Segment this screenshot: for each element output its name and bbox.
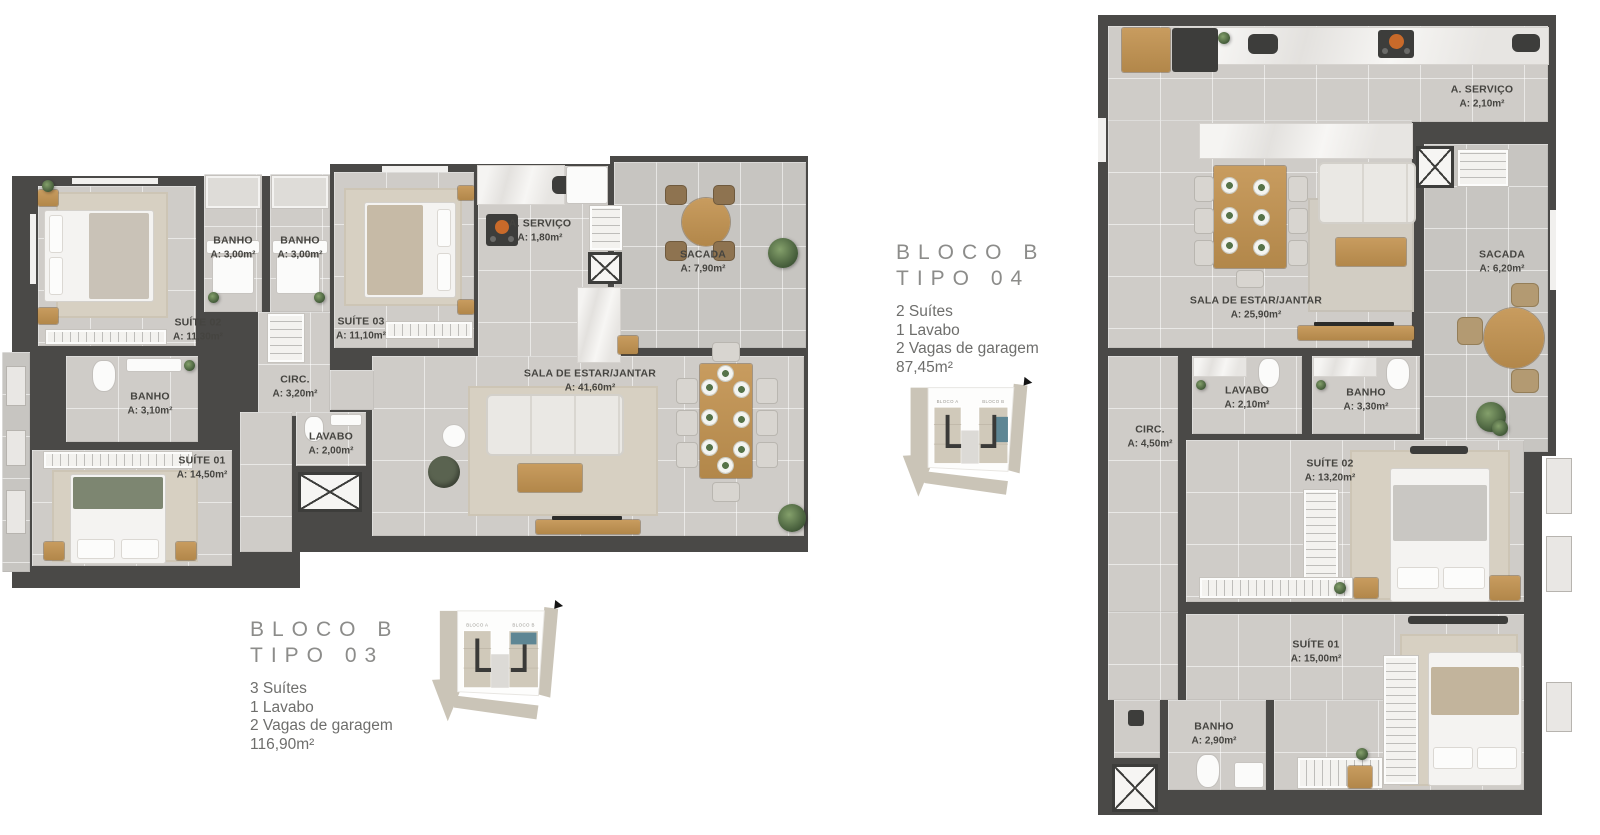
block-name: BLOCO B (896, 240, 1045, 266)
unit-info-tipo03: BLOCO B TIPO 03 3 Suítes 1 Lavabo 2 Vaga… (250, 617, 399, 754)
vanity (1194, 358, 1246, 376)
chair (1512, 370, 1538, 392)
chair (666, 186, 686, 204)
room-area: A: 3,00m² (277, 248, 322, 261)
plaza (491, 654, 509, 688)
nightstand (1354, 578, 1378, 598)
pillow (1477, 747, 1517, 769)
plate (734, 382, 749, 397)
plate (702, 380, 717, 395)
tipo-name: TIPO 03 (250, 643, 399, 669)
plate (734, 412, 749, 427)
room-name: BANHO (1191, 721, 1236, 735)
window (30, 214, 36, 284)
nightstand (1490, 576, 1520, 600)
pantry (1458, 150, 1508, 186)
bed (1428, 652, 1522, 786)
plant (1196, 380, 1206, 390)
wardrobe (1200, 578, 1352, 598)
total-area: 116,90m² (250, 736, 399, 755)
dresser (1408, 616, 1508, 624)
balcony-table (1484, 308, 1544, 368)
shower (272, 176, 328, 208)
room-label-lavabo: LAVABO A: 2,00m² (308, 431, 353, 458)
wardrobe (44, 452, 192, 468)
pan (1389, 34, 1404, 49)
chair (676, 410, 698, 436)
kitchen-cabinet (1122, 28, 1170, 72)
chair (1512, 284, 1538, 306)
chair (1458, 318, 1482, 344)
room-area: A: 2,00m² (308, 444, 353, 457)
room-area: A: 11,30m² (173, 330, 223, 343)
keyplan-label-bloco-a: BLOCO A (466, 623, 488, 628)
pan (495, 220, 509, 234)
keyplan-label-bloco-b: BLOCO B (982, 399, 1004, 404)
room-area: A: 7,90m² (680, 262, 726, 275)
blanket (1393, 485, 1487, 541)
chair (1194, 176, 1214, 202)
kitchen-sink (1248, 34, 1278, 54)
road (911, 388, 929, 462)
wardrobe (46, 330, 166, 344)
room-label-suite01: SUÍTE 01 A: 14,50m² (177, 455, 228, 482)
chair (1194, 240, 1214, 266)
room-area: A: 25,90m² (1190, 308, 1322, 321)
room-name: SUÍTE 01 (1291, 639, 1342, 653)
toilet (1196, 754, 1220, 788)
blanket (73, 477, 163, 509)
bed (44, 210, 154, 302)
ac-unit (1546, 458, 1572, 514)
room-name: SACADA (1479, 249, 1525, 263)
room-floor-hall (240, 412, 292, 552)
plant (1316, 380, 1326, 390)
room-area: A: 2,90m² (1191, 734, 1236, 747)
room-label-banho-c: BANHO A: 3,10m² (127, 391, 172, 418)
chair (1288, 240, 1308, 266)
kitchen-island (1200, 124, 1412, 158)
room-name: SUÍTE 02 (173, 317, 223, 331)
balcony-table (682, 198, 730, 246)
plant (1356, 748, 1368, 760)
plate (734, 442, 749, 457)
room-label-sacada: SACADA A: 6,20m² (1479, 249, 1525, 276)
north-arrow-icon (554, 600, 563, 609)
plate (702, 410, 717, 425)
road (440, 611, 458, 686)
room-label-servico: A. SERVIÇO A: 2,10m² (1451, 84, 1514, 111)
pillow (77, 539, 115, 559)
room-area: A: 15,00m² (1291, 652, 1342, 665)
chair (712, 342, 740, 362)
pouf (428, 456, 460, 488)
toilet (1258, 358, 1280, 388)
kitchen-counter (1180, 28, 1548, 64)
dresser (1410, 446, 1468, 454)
chair (756, 378, 778, 404)
tv (552, 516, 622, 520)
room-name: SACADA (680, 249, 726, 263)
elevator (298, 472, 362, 512)
room-area: A: 11,10m² (336, 329, 386, 342)
room-area: A: 2,10m² (1224, 398, 1269, 411)
room-area: A: 3,30m² (1343, 400, 1388, 413)
room-label-banho-b: BANHO A: 2,90m² (1191, 721, 1236, 748)
vanity (330, 414, 362, 426)
tv (1314, 322, 1394, 326)
north-arrow-icon (1024, 377, 1033, 386)
chair (1288, 176, 1308, 202)
burner (490, 236, 496, 242)
vanity (126, 358, 182, 372)
pillow (49, 257, 63, 295)
unit-info-tipo04: BLOCO B TIPO 04 2 Suítes 1 Lavabo 2 Vaga… (896, 240, 1045, 377)
room-name: BANHO (277, 235, 322, 249)
plant (184, 360, 195, 371)
kitchen-island (578, 288, 620, 362)
room-name: SALA DE ESTAR/JANTAR (1190, 295, 1322, 309)
feature-item: 1 Lavabo (896, 322, 1045, 341)
room-name: BANHO (1343, 387, 1388, 401)
room-name: SALA DE ESTAR/JANTAR (524, 368, 656, 382)
sink-cabinet (212, 256, 254, 294)
wardrobe (386, 322, 472, 338)
burner (1404, 48, 1410, 54)
ac-unit (1546, 536, 1572, 592)
chair (756, 442, 778, 468)
sofa (1318, 162, 1416, 224)
linen-closet (268, 314, 304, 362)
pillow (437, 253, 451, 291)
room-name: SUÍTE 01 (177, 455, 228, 469)
window (72, 178, 158, 184)
bed (1390, 468, 1490, 602)
nightstand (458, 300, 474, 314)
plate (1222, 178, 1237, 193)
pillow (49, 215, 63, 253)
nightstand (44, 542, 64, 560)
plant (1334, 582, 1346, 594)
room-label-sala: SALA DE ESTAR/JANTAR A: 25,90m² (1190, 295, 1322, 322)
chair (676, 378, 698, 404)
room-label-suite01: SUÍTE 01 A: 15,00m² (1291, 639, 1342, 666)
room-name: LAVABO (308, 431, 353, 445)
room-label-banho-b: BANHO A: 3,00m² (277, 235, 322, 262)
pillow (437, 209, 451, 247)
room-floor-circ (1108, 356, 1178, 612)
room-name: BANHO (210, 235, 255, 249)
room-label-suite02: SUÍTE 02 A: 13,20m² (1305, 458, 1356, 485)
plant (778, 504, 806, 532)
keyplan-tipo04: BLOCO A BLOCO B (898, 374, 1040, 522)
room-label-lavabo: LAVABO A: 2,10m² (1224, 385, 1269, 412)
pillow (121, 539, 159, 559)
bed (364, 202, 456, 298)
toilet (1386, 358, 1410, 390)
chair (676, 442, 698, 468)
nightstand (38, 190, 58, 206)
coffee-table (1336, 238, 1406, 266)
room-name: LAVABO (1224, 385, 1269, 399)
sofa (486, 394, 624, 456)
elevator (1112, 764, 1158, 812)
room-area: A: 1,80m² (509, 231, 572, 244)
plate (702, 440, 717, 455)
shower (206, 176, 260, 208)
pillow (1433, 747, 1473, 769)
plant (42, 180, 54, 192)
room-area: A: 3,00m² (210, 248, 255, 261)
chair (714, 186, 734, 204)
blanket (1431, 667, 1519, 715)
room-name: A. SERVIÇO (1451, 84, 1514, 98)
highlighted-unit (511, 633, 537, 645)
toilet (92, 360, 116, 392)
elevator (1416, 146, 1454, 188)
unit-title: BLOCO B TIPO 04 (896, 240, 1045, 292)
floorplan-page: SUÍTE 02 A: 11,30m² BANHO A: 3,00m² BANH… (0, 0, 1600, 835)
pillow (1397, 567, 1439, 589)
unit-title: BLOCO B TIPO 03 (250, 617, 399, 669)
keyplan-label-bloco-b: BLOCO B (512, 623, 534, 628)
plate (1254, 180, 1269, 195)
nightstand (38, 308, 58, 324)
room-label-sala: SALA DE ESTAR/JANTAR A: 41,60m² (524, 368, 656, 395)
plate (718, 458, 733, 473)
room-label-suite02: SUÍTE 02 A: 11,30m² (173, 317, 223, 344)
feature-item: 3 Suítes (250, 680, 399, 699)
laundry-sink (1512, 34, 1540, 52)
unit-features: 3 Suítes 1 Lavabo 2 Vagas de garagem 116… (250, 680, 399, 754)
room-label-circ: CIRC. A: 4,50m² (1127, 424, 1172, 451)
room-label-sacada: SACADA A: 7,90m² (680, 249, 726, 276)
nightstand (176, 542, 196, 560)
feature-item: 2 Vagas de garagem (250, 717, 399, 736)
room-label-servico: A. SERVIÇO A: 1,80m² (509, 218, 572, 245)
bed (70, 474, 166, 564)
fridge (1172, 28, 1218, 72)
plant (1492, 420, 1508, 436)
nightstand (1348, 766, 1372, 788)
plant (768, 238, 798, 268)
ac-unit (6, 490, 26, 534)
doorway (330, 370, 374, 410)
room-area: A: 41,60m² (524, 381, 656, 394)
plate (1254, 210, 1269, 225)
ac-unit (1546, 682, 1572, 732)
burner (1382, 48, 1388, 54)
plate (1254, 240, 1269, 255)
shower-niche (1114, 700, 1160, 758)
ac-unit (6, 430, 26, 466)
entry-door (1098, 118, 1106, 162)
blanket (367, 205, 423, 295)
plant (314, 292, 325, 303)
ac-unit (6, 366, 26, 406)
pillow (1443, 567, 1485, 589)
room-name: SUÍTE 03 (336, 316, 386, 330)
room-label-banho-a: BANHO A: 3,00m² (210, 235, 255, 262)
window (1550, 210, 1556, 290)
wardrobe (1304, 490, 1338, 582)
wardrobe (1384, 656, 1418, 784)
blanket (89, 213, 149, 299)
feature-item: 1 Lavabo (250, 699, 399, 718)
room-area: A: 3,10m² (127, 404, 172, 417)
tv-console (1298, 326, 1414, 340)
pantry (590, 206, 622, 250)
block-name: BLOCO B (250, 617, 399, 643)
nightstand (458, 186, 474, 200)
chair (1288, 208, 1308, 234)
room-name: CIRC. (1127, 424, 1172, 438)
feature-item: 2 Suítes (896, 303, 1045, 322)
highlighted-unit (995, 417, 1008, 442)
tipo-name: TIPO 04 (896, 266, 1045, 292)
side-table (442, 424, 466, 448)
room-area: A: 4,50m² (1127, 437, 1172, 450)
plate (1222, 208, 1237, 223)
room-area: A: 2,10m² (1451, 97, 1514, 110)
room-name: BANHO (127, 391, 172, 405)
room-area: A: 3,20m² (272, 387, 317, 400)
elevator (588, 252, 622, 284)
plate (1222, 238, 1237, 253)
room-name: SUÍTE 02 (1305, 458, 1356, 472)
room-name: A. SERVIÇO (509, 218, 572, 232)
feature-item: 2 Vagas de garagem (896, 340, 1045, 359)
chair (1194, 208, 1214, 234)
room-area: A: 13,20m² (1305, 471, 1356, 484)
keyplan-tipo03: BLOCO A BLOCO B (430, 596, 568, 748)
window (382, 166, 448, 172)
plaza (961, 430, 979, 463)
coffee-table (518, 464, 582, 492)
keyplan-label-bloco-a: BLOCO A (937, 399, 959, 404)
chair (1236, 270, 1264, 288)
room-area: A: 14,50m² (177, 468, 228, 481)
room-label-circ: CIRC. A: 3,20m² (272, 374, 317, 401)
room-name: CIRC. (272, 374, 317, 388)
stool (618, 336, 638, 354)
laundry-appliance (566, 166, 608, 204)
sink-cabinet (276, 256, 320, 294)
vanity (1314, 358, 1376, 376)
chair (712, 482, 740, 502)
vanity (1234, 762, 1264, 788)
cooktop (1378, 30, 1414, 58)
room-area: A: 6,20m² (1479, 262, 1525, 275)
tv-console (536, 520, 640, 534)
road (924, 471, 1008, 494)
plant (208, 292, 219, 303)
plant (1218, 32, 1230, 44)
room-label-suite03: SUÍTE 03 A: 11,10m² (336, 316, 386, 343)
room-label-banho-a: BANHO A: 3,30m² (1343, 387, 1388, 414)
road (454, 696, 539, 720)
plate (718, 366, 733, 381)
wall-cut (300, 552, 334, 588)
shower-head (1128, 710, 1144, 726)
chair (756, 410, 778, 436)
room-floor-hall (1108, 612, 1178, 700)
unit-features: 2 Suítes 1 Lavabo 2 Vagas de garagem 87,… (896, 303, 1045, 377)
